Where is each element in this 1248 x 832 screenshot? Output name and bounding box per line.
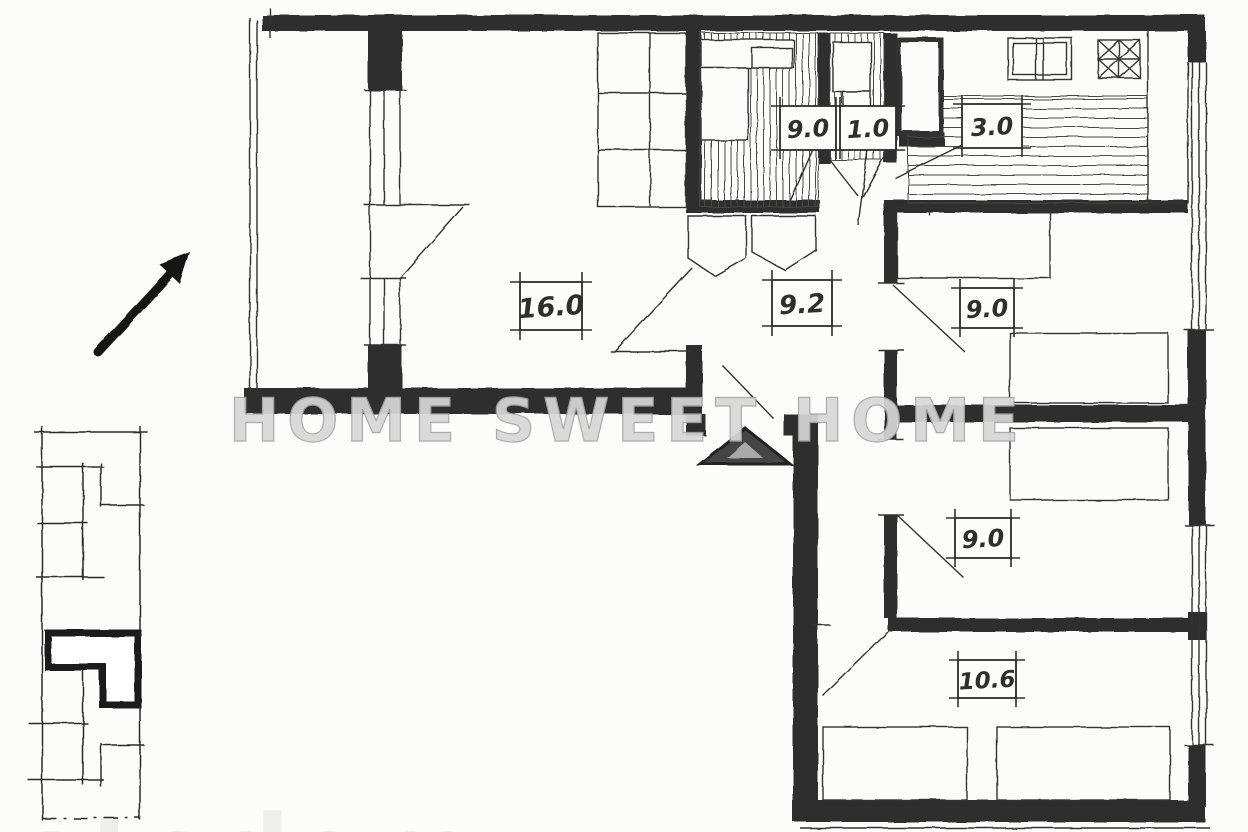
room-area-label: 9.0 bbox=[965, 294, 1009, 324]
bedroom1-bed-b bbox=[1010, 333, 1168, 403]
bedroom1-bed-a bbox=[897, 208, 1050, 278]
key-plan bbox=[28, 426, 148, 820]
room-label-bedroom-1: 9.0 bbox=[951, 279, 1023, 337]
room-label-kitchen: 3.0 bbox=[953, 95, 1031, 157]
living-room-door bbox=[610, 268, 692, 352]
kitchen-sink-unit bbox=[1008, 38, 1072, 80]
floor-plan-sheet: 16.0 9.2 9.0 1.0 3.0 bbox=[0, 0, 1248, 832]
corner-watermark-text: otodom bbox=[16, 794, 478, 832]
room-area-label: 1.0 bbox=[846, 114, 890, 144]
bedroom3-door-swing bbox=[823, 632, 888, 696]
living-room-wardrobe bbox=[598, 33, 686, 207]
key-plan-unit-highlight bbox=[48, 633, 138, 705]
north-arrow-icon bbox=[98, 252, 190, 352]
balcony-door-swing bbox=[400, 207, 463, 278]
balcony-window-wall bbox=[360, 90, 470, 345]
bedroom2-bed bbox=[1010, 428, 1168, 500]
bedroom3-bed-a bbox=[823, 727, 967, 800]
hall-closets bbox=[688, 216, 816, 276]
room-label-wc: 1.0 bbox=[831, 97, 905, 159]
room-area-label: 16.0 bbox=[517, 290, 586, 326]
room-label-living: 16.0 bbox=[510, 272, 592, 340]
living-door-swing bbox=[614, 268, 692, 352]
room-area-label: 9.0 bbox=[961, 524, 1005, 554]
room-label-bedroom-2: 9.0 bbox=[946, 509, 1020, 567]
floor-plan-canvas: 16.0 9.2 9.0 1.0 3.0 bbox=[0, 0, 1248, 832]
kitchen-hob bbox=[1098, 40, 1140, 78]
room-area-label: 9.0 bbox=[786, 114, 830, 144]
pantry bbox=[899, 40, 941, 133]
room-area-label: 9.2 bbox=[778, 289, 826, 321]
bedroom2-door-swing bbox=[897, 515, 963, 577]
room-area-label: 3.0 bbox=[970, 112, 1014, 142]
bedroom3-bed-b bbox=[997, 727, 1170, 800]
kitchen-floor bbox=[908, 96, 1148, 203]
kitchen-window-bay bbox=[1148, 31, 1188, 203]
room-label-hall: 9.2 bbox=[762, 270, 842, 336]
room-label-bedroom-3: 10.6 bbox=[949, 651, 1025, 707]
bedroom1-door-swing bbox=[893, 285, 965, 352]
watermark-text: HOME SWEET HOME bbox=[229, 386, 1027, 456]
room-area-label: 10.6 bbox=[958, 667, 1016, 696]
